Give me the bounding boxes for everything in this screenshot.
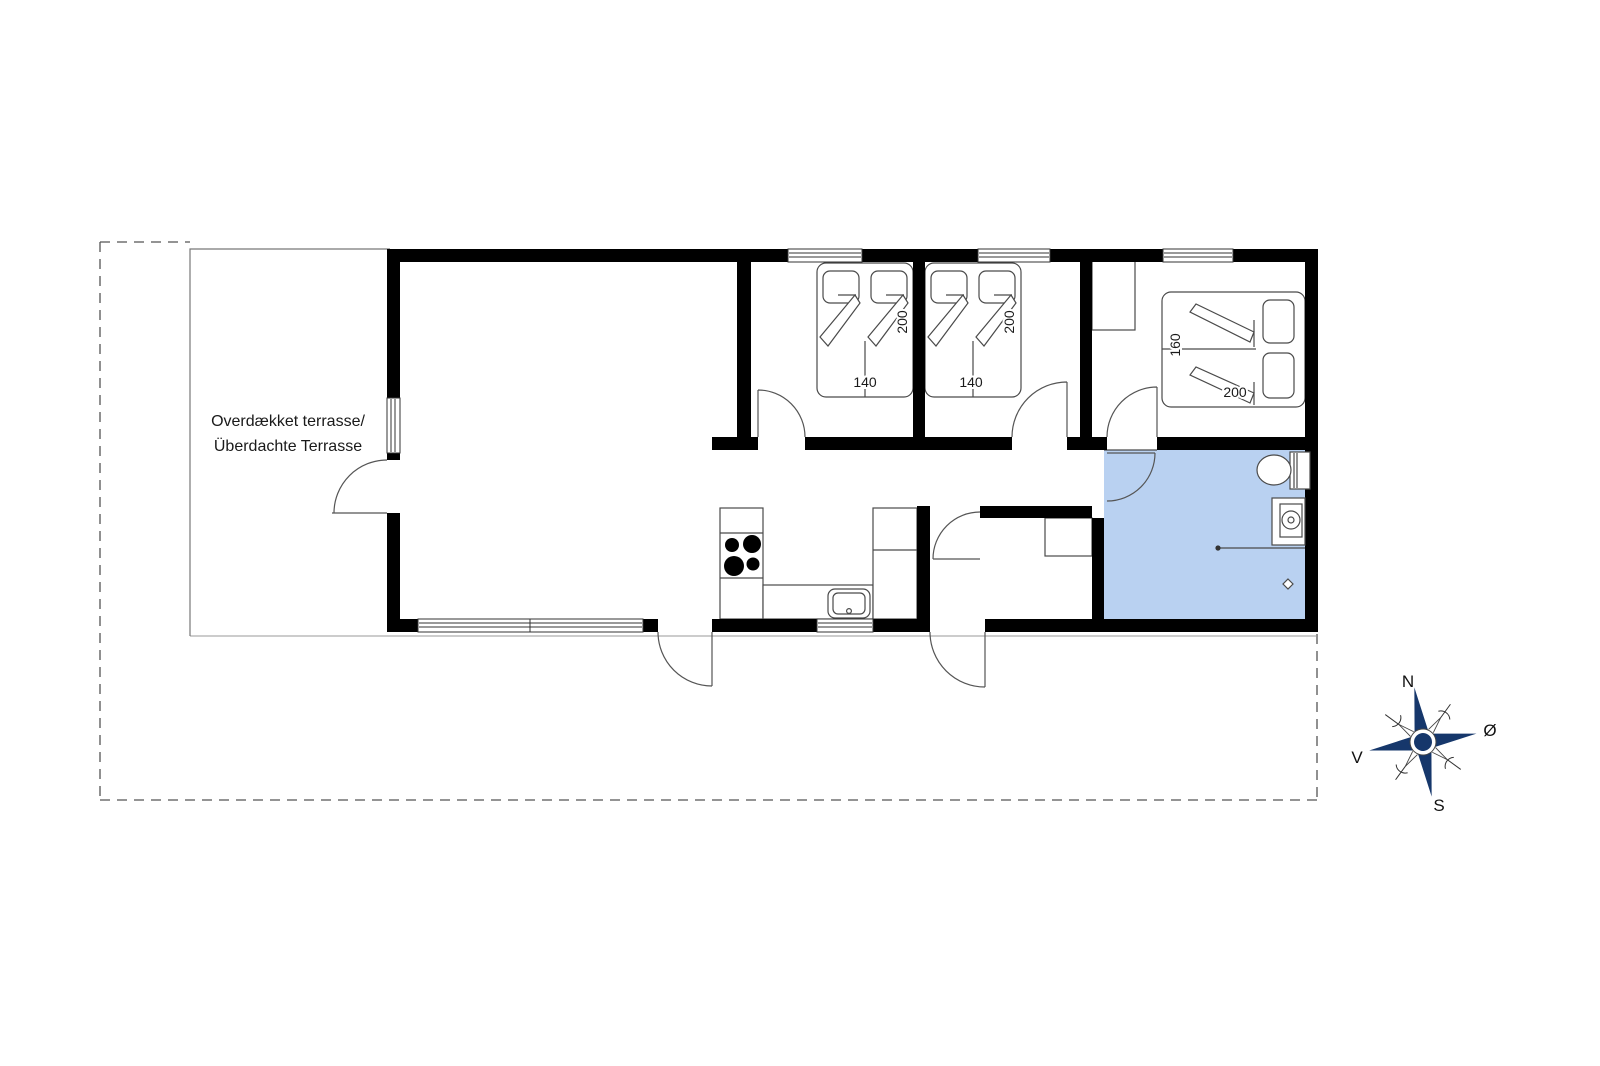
double-bed-1: 140 200 [817,263,913,397]
bedroom1-window [788,249,862,262]
wall-corridor [1067,437,1107,450]
bed-pillow [1263,300,1294,343]
wall-left [387,249,400,398]
wall-top [862,249,978,262]
double-bed-3: 160 200 [1162,292,1305,407]
kitchen-counter-right [873,508,917,619]
living-room-south-window [418,619,643,632]
shower-head [1215,545,1220,550]
bedroom3-door-swing [1107,387,1157,437]
wall-bottom [643,619,658,632]
hall-exterior-door-swing [930,632,985,687]
wall-living-bedroom1 [737,262,751,437]
wall-left [387,513,400,632]
hall-interior-door-swing [933,512,980,559]
bed3-length-label: 200 [1223,384,1247,400]
terrace-label-line1: Overdækket terrasse/ [211,413,365,430]
compass-label-south: S [1433,796,1444,815]
bed3-width-label: 160 [1167,333,1183,357]
bedroom2-window [978,249,1050,262]
wall-bathroom-left [1092,518,1104,632]
wall-bathroom-top [1157,437,1318,450]
wall-left [387,453,400,460]
wall-corridor [712,437,758,450]
compass-label-west: V [1351,748,1363,767]
wall-corridor [805,437,1012,450]
stove-burner [724,556,744,576]
floorplan-drawing: Overdækket terrasse/ Überdachte Terrasse [0,0,1600,1066]
living-room-west-window [387,398,400,453]
bedroom1-door-swing [758,390,805,437]
toilet-bowl [1257,455,1291,485]
kitchen-sink [828,589,870,618]
wall-hall-top [980,506,1092,518]
compass-star [1358,676,1489,808]
hall-closet [1045,518,1092,556]
bedroom3-window [1163,249,1233,262]
stove-burner [725,538,739,552]
wall-bedroom1-bedroom2 [913,262,925,437]
double-bed-2: 140 200 [925,263,1021,397]
washbasin [1272,498,1305,545]
bed1-width-label: 140 [853,374,877,390]
compass-label-east: Ø [1483,721,1496,740]
wall-top [387,249,788,262]
compass-rose: N Ø S V [1351,672,1496,815]
stove-burner [743,535,761,553]
wall-bottom [387,619,418,632]
stove-burner [747,558,760,571]
bed-pillow [1263,353,1294,398]
kitchen-counter [720,508,917,619]
wall-top [1050,249,1163,262]
toilet-tank [1290,452,1310,489]
bed2-length-label: 200 [1001,310,1017,334]
compass-label-north: N [1402,672,1414,691]
bed2-width-label: 140 [959,374,983,390]
wall-bottom [712,619,817,632]
wall-hall-left [917,506,930,632]
wall-bedroom2-bedroom3 [1080,262,1092,450]
kitchen-window [817,619,873,632]
terrace-label-line2: Überdachte Terrasse [214,437,362,455]
bed1-length-label: 200 [894,310,910,334]
basin-square [1280,504,1302,537]
covered-terrace: Overdækket terrasse/ Überdachte Terrasse [190,249,390,636]
floorplan-page: Overdækket terrasse/ Überdachte Terrasse [0,0,1600,1066]
sink-basin [833,593,865,614]
wall-bottom [985,619,1318,632]
bedroom3-closet [1092,258,1135,330]
terrace-door-swing [332,460,387,513]
living-room-exterior-door-swing [658,632,712,686]
